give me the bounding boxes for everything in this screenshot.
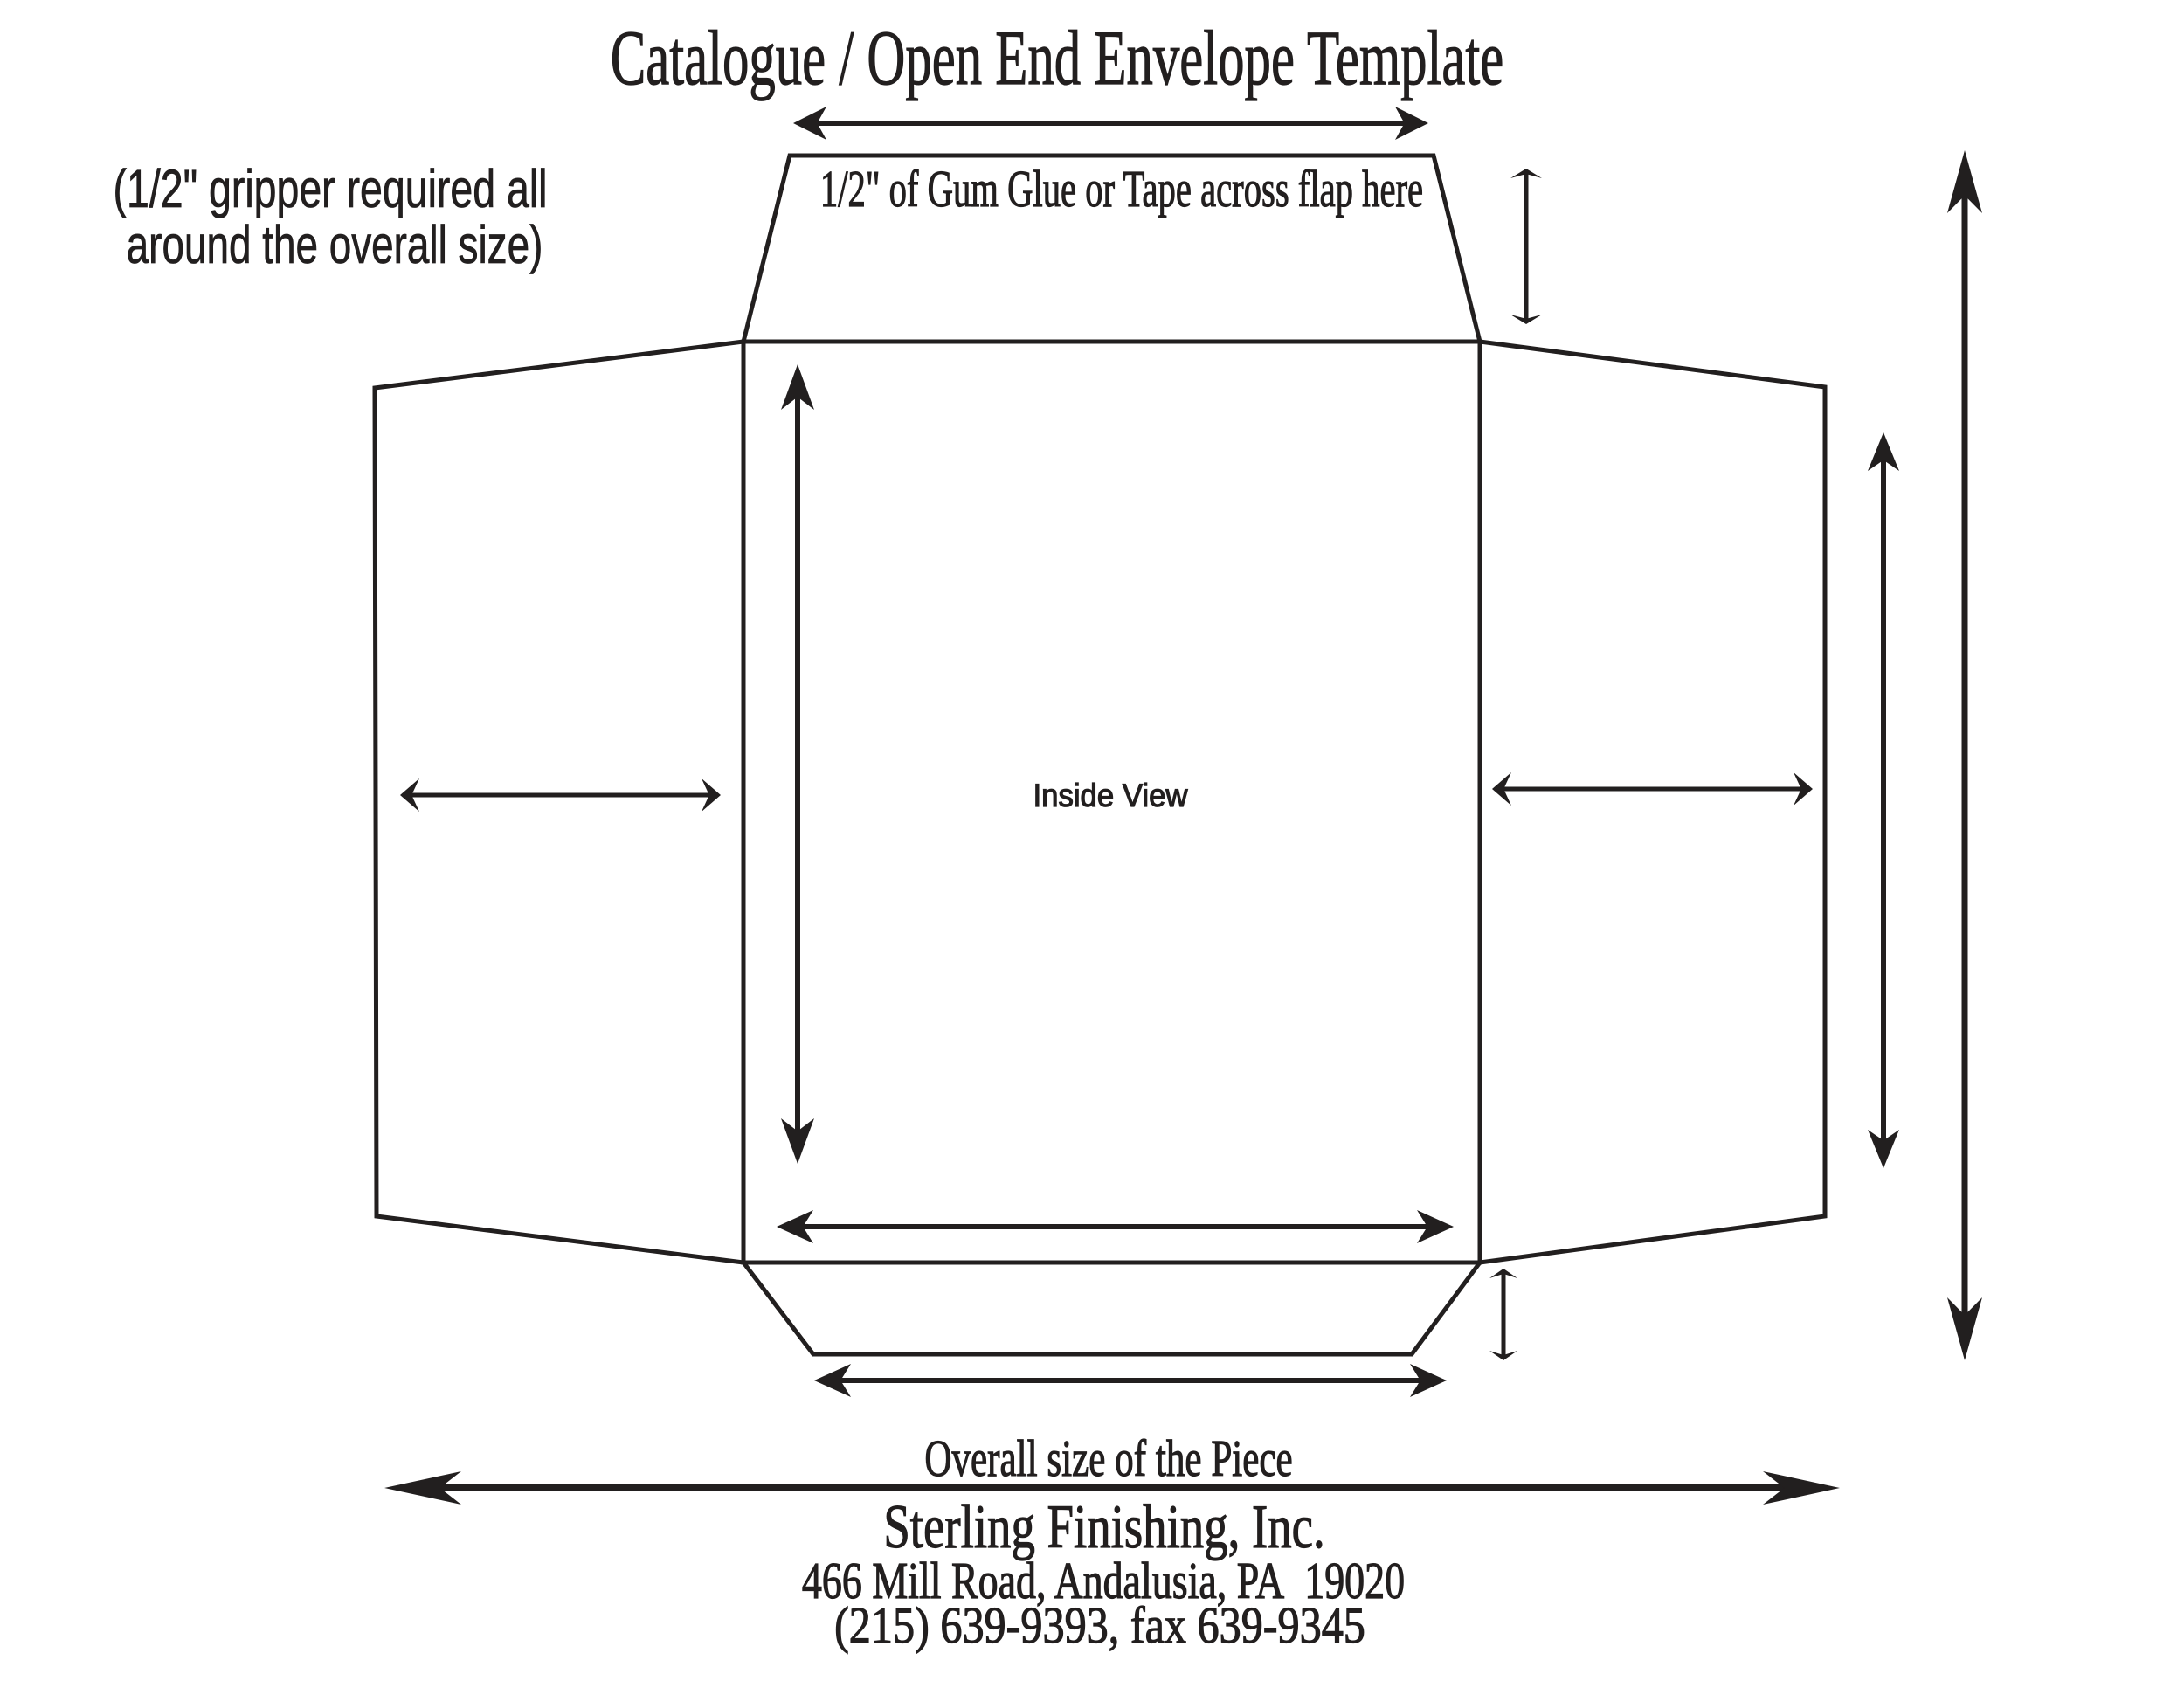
svg-text:Catalogue / Open End Envelope: Catalogue / Open End Envelope Template	[611, 16, 1504, 101]
svg-text:Overall size of the Piece: Overall size of the Piece	[924, 1431, 1292, 1488]
svg-text:1/2" of Gum Glue or Tape acros: 1/2" of Gum Glue or Tape across flap her…	[820, 161, 1423, 218]
svg-text:Sterling Finishing, Inc.: Sterling Finishing, Inc.	[883, 1491, 1324, 1560]
svg-text:(1/2" gripper required all: (1/2" gripper required all	[114, 160, 548, 218]
svg-text:Inside View: Inside View	[1033, 778, 1188, 813]
svg-text:around the overall size): around the overall size)	[127, 216, 543, 275]
svg-text:(215) 639-9393, fax 639-9345: (215) 639-9393, fax 639-9345	[834, 1596, 1365, 1654]
